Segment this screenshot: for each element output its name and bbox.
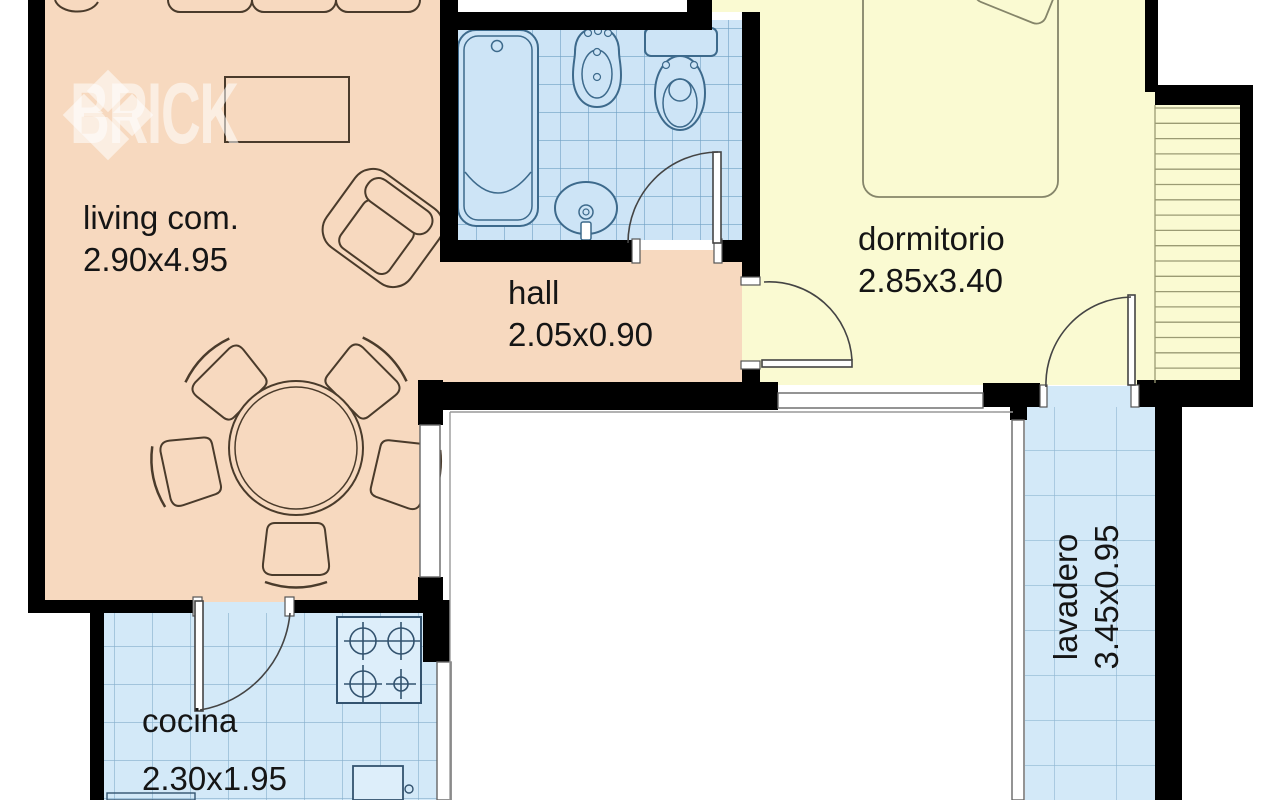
room-name: lavadero <box>1045 525 1086 670</box>
floor-plan-drawing <box>0 0 1280 800</box>
dormitorio-window <box>778 393 983 408</box>
patio-edge <box>450 412 1013 800</box>
room-dims: 2.30x1.95 <box>142 758 287 800</box>
coffee-table <box>225 77 349 142</box>
floor-plan: BRICK living com. 2.90x4.95 hall 2.05x0.… <box>0 0 1280 800</box>
room-dims: 3.45x0.95 <box>1086 525 1127 670</box>
room-label-dormitorio: dormitorio 2.85x3.40 <box>858 218 1005 302</box>
room-label-lavadero: lavadero 3.45x0.95 <box>1045 525 1127 670</box>
windows <box>420 393 1024 800</box>
kitchen-door-threshold <box>202 602 287 613</box>
room-dims: 2.05x0.90 <box>508 314 653 356</box>
room-dims: 2.85x3.40 <box>858 260 1005 302</box>
room-dims: 2.90x4.95 <box>83 239 239 281</box>
stove <box>337 617 421 703</box>
room-label-living: living com. 2.90x4.95 <box>83 197 239 281</box>
room-name: cocina <box>142 700 287 742</box>
living-window <box>420 425 440 577</box>
room-name: hall <box>508 272 653 314</box>
room-label-cocina: cocina 2.30x1.95 <box>142 700 287 800</box>
room-label-hall: hall 2.05x0.90 <box>508 272 653 356</box>
sofa <box>168 0 420 12</box>
dining-table <box>229 381 363 515</box>
room-name: living com. <box>83 197 239 239</box>
lavadero-window <box>1012 420 1024 800</box>
dormitorio-notch <box>712 0 758 12</box>
kitchen-window <box>437 662 451 800</box>
stairs-floor <box>1155 85 1240 385</box>
bidet <box>573 28 621 108</box>
room-name: dormitorio <box>858 218 1005 260</box>
bed <box>863 0 1058 197</box>
bathtub <box>458 30 538 226</box>
